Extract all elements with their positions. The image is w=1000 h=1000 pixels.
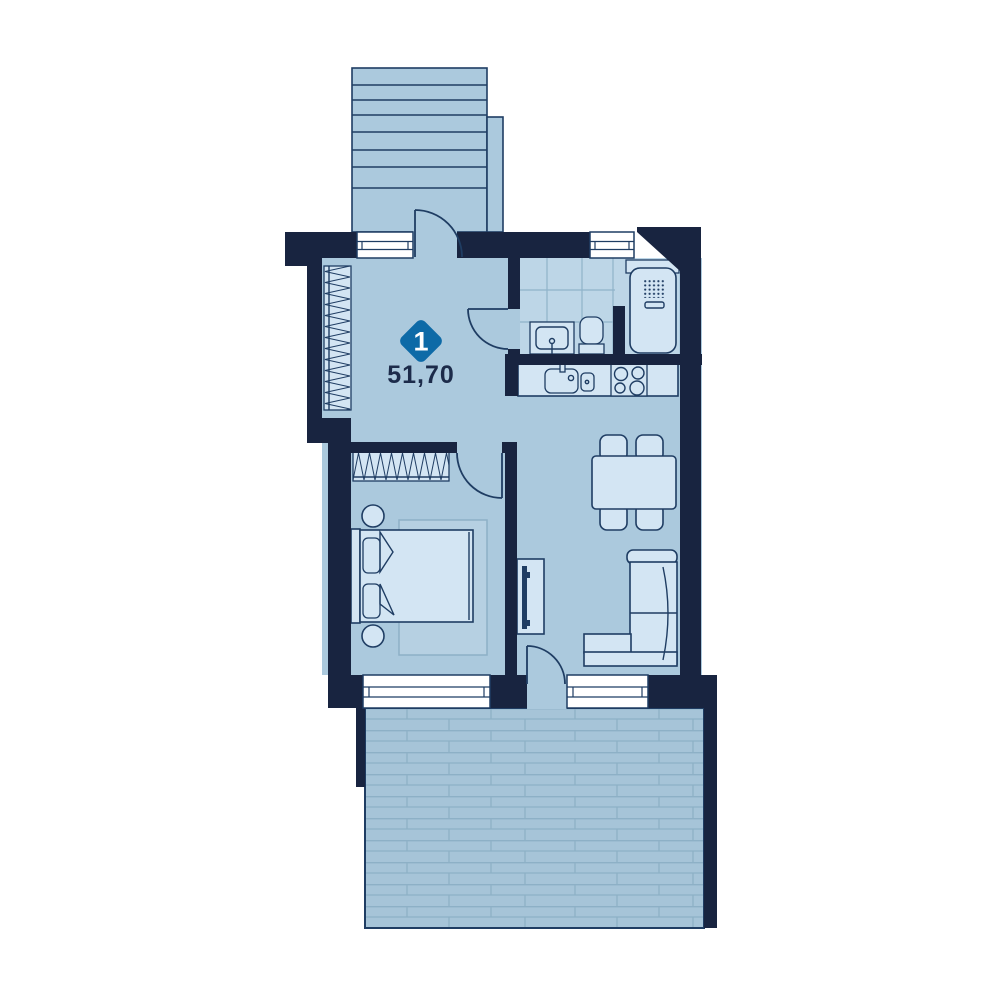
floor-plan-page: 1 51,70 [0,0,1000,1000]
water-heater-icon [626,260,679,353]
nightstand-icon [362,625,384,647]
area-label: 51,70 [387,361,455,389]
pillow-icon [363,584,380,618]
tv-stand-icon [517,559,544,634]
floor-plan: 1 51,70 [0,0,1000,1000]
window-icon [590,232,634,258]
headboard [351,529,360,623]
dining-table-icon [592,456,676,509]
window-icon [357,232,413,258]
porch-side-strip [487,117,503,232]
stairs-icon [352,68,503,232]
terrace-right-wall [704,708,717,928]
badge-number: 1 [413,327,428,357]
stove-icon [611,364,647,396]
hall-closet-icon [324,266,351,410]
tv-icon [522,566,527,629]
nightstand-icon [362,505,384,527]
wardrobe-icon [353,452,449,481]
toilet-icon [579,317,604,354]
terrace-deck-icon [356,708,717,928]
terrace-left-wall [356,708,365,787]
pillow-icon [363,538,380,573]
window-icon [363,675,490,708]
window-icon [567,675,648,708]
kitchen-counter [518,360,678,396]
bathroom-sink-icon [530,322,574,356]
